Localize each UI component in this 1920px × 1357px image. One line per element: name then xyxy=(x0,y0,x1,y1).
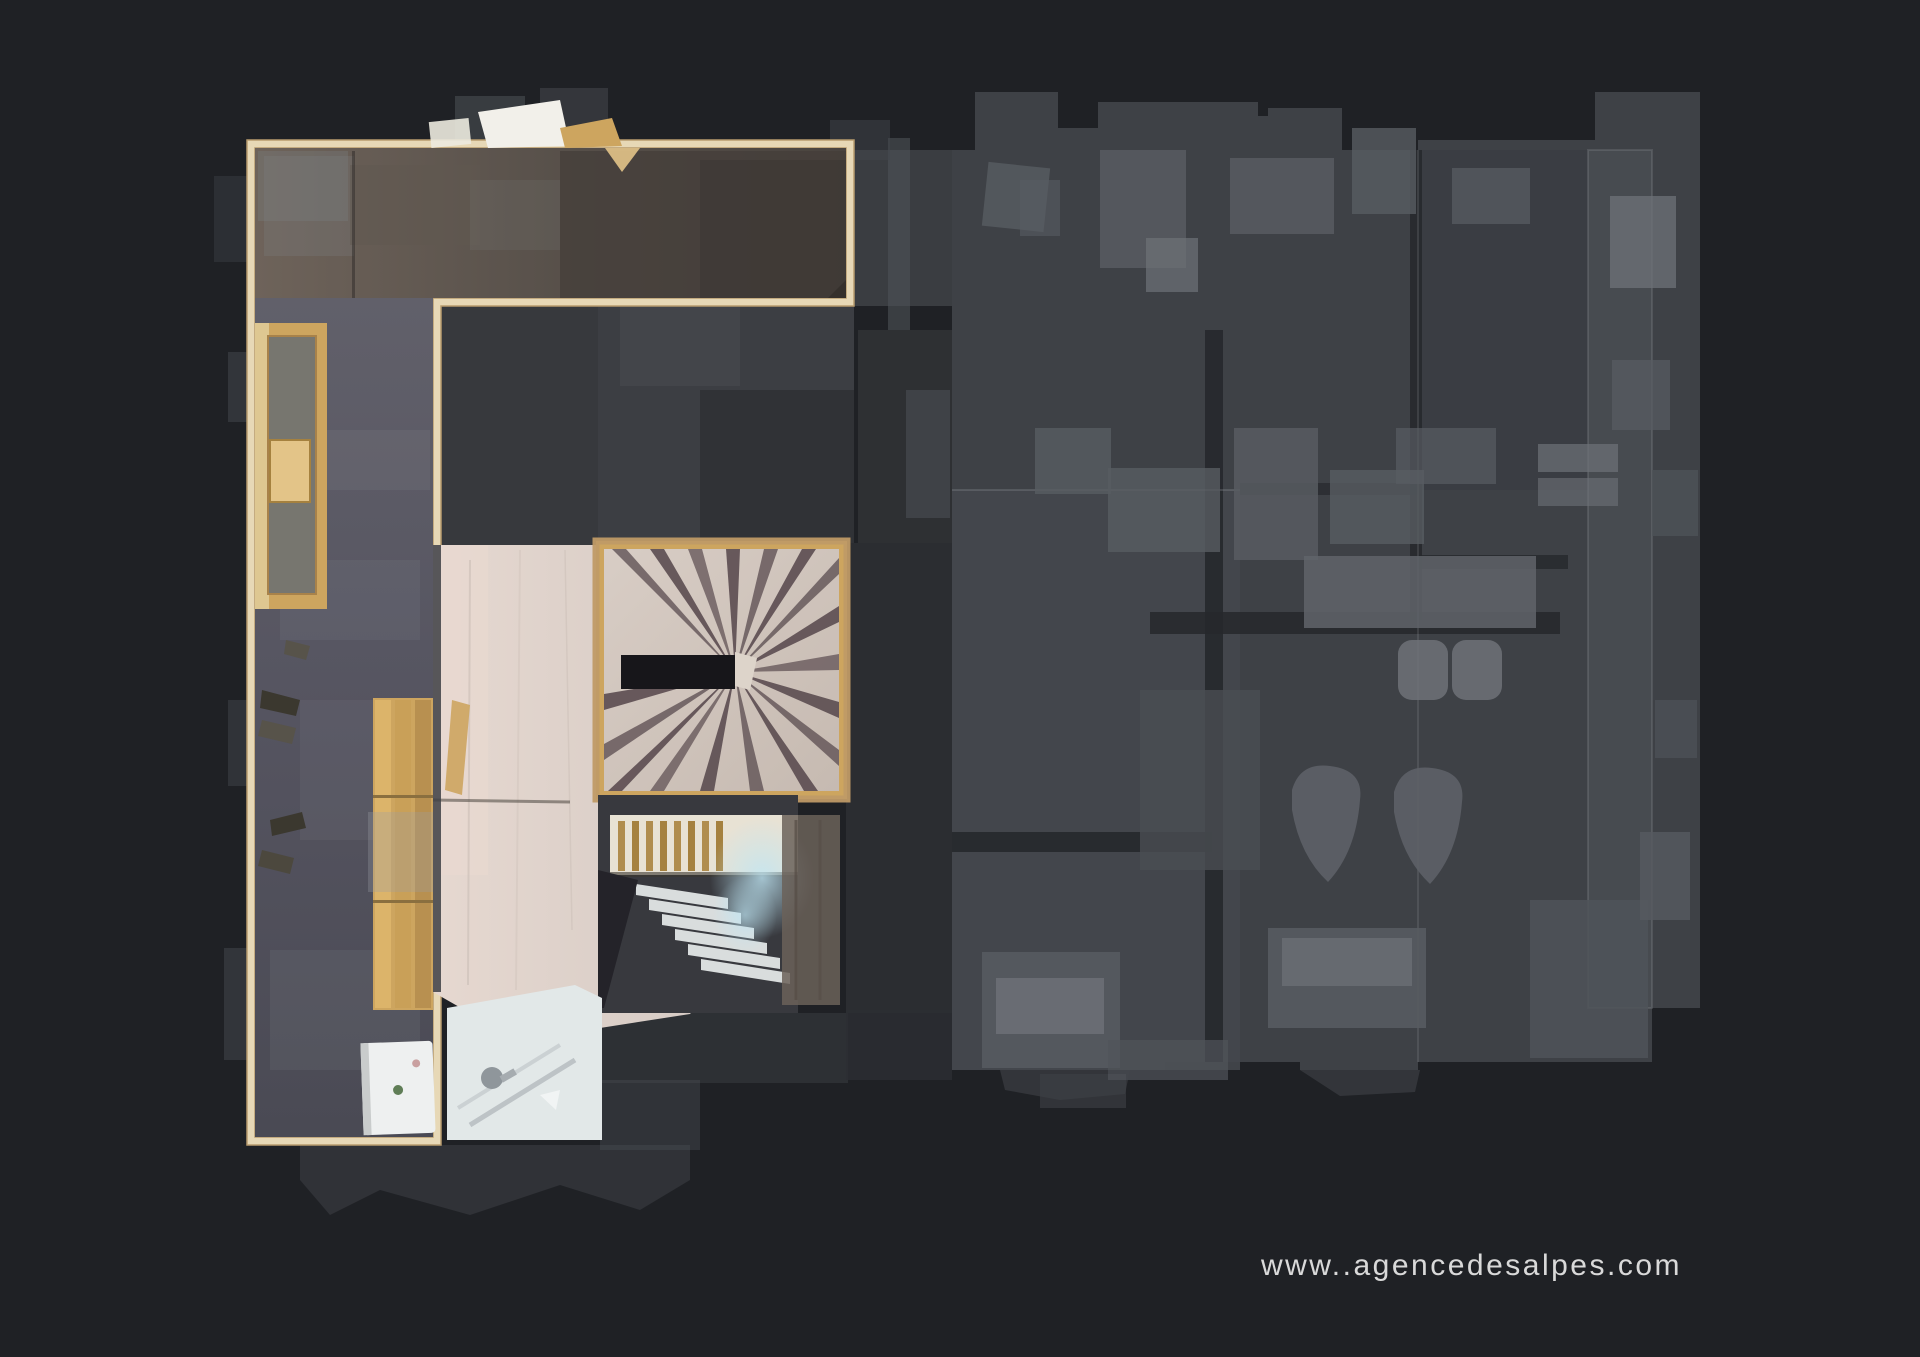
white-table xyxy=(360,1041,435,1135)
shelf-box xyxy=(270,440,310,502)
watermark: www..agencedesalpes.com xyxy=(1261,1249,1682,1283)
straight-staircase-room xyxy=(598,795,840,1013)
floorplan-viewer: www..agencedesalpes.com xyxy=(0,0,1920,1357)
bed-silhouette xyxy=(1304,556,1536,628)
wood-bench xyxy=(368,698,438,1010)
side-wood-strip xyxy=(782,815,840,1005)
inactive-floorplan[interactable] xyxy=(952,92,1700,1108)
spiral-staircase xyxy=(596,541,847,799)
wood-shelf-unit xyxy=(255,323,327,609)
bathroom xyxy=(447,985,602,1140)
floorplan-canvas xyxy=(0,0,1920,1357)
faucet xyxy=(481,1067,503,1089)
stair-opening xyxy=(621,655,735,689)
